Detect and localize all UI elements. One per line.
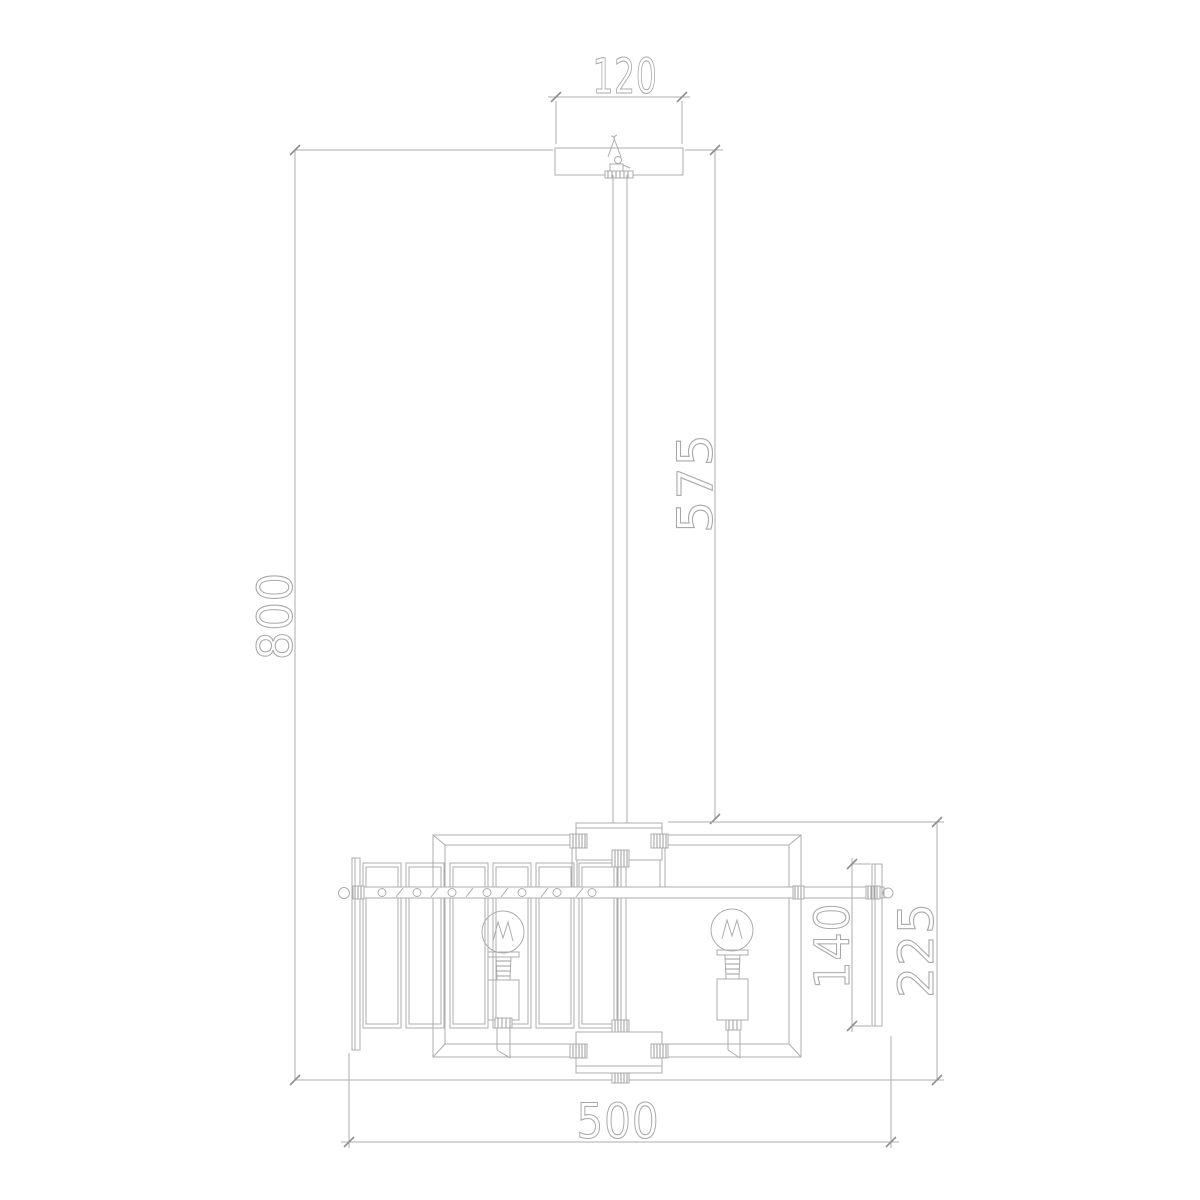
bulb-filament-icon — [722, 920, 742, 939]
dimension-end-plate-height: 140 — [805, 858, 871, 1032]
dimension-canopy-width: 120 — [548, 49, 690, 144]
finial — [612, 1073, 629, 1083]
dim-label-rod-length: 575 — [668, 433, 724, 533]
threaded-nipple-right — [651, 1044, 668, 1058]
hub-plate — [576, 1032, 662, 1073]
dim-label-overall-height: 800 — [248, 572, 304, 660]
bar-thread-frame-crossing — [793, 886, 804, 899]
bar-eye-left — [339, 888, 350, 899]
threaded-nipple-left — [570, 834, 587, 848]
bar-thread-right — [866, 886, 880, 899]
ceiling-canopy — [555, 135, 683, 178]
frame-bevel — [433, 835, 445, 845]
candle-body — [717, 979, 748, 1020]
frame-bevel — [789, 1044, 801, 1057]
hanging-hook-icon — [605, 135, 633, 178]
frame-bevel — [789, 835, 801, 845]
suspension-rod — [613, 175, 627, 823]
dim-label-canopy-width: 120 — [593, 49, 658, 105]
screw-base — [496, 957, 511, 980]
lower-collar — [726, 1020, 741, 1030]
bulb-assembly-right — [711, 909, 753, 1058]
dimension-rod-length: 575 — [668, 145, 724, 824]
technical-drawing-page: 120 575 800 — [0, 0, 1200, 1200]
threaded-nipple-right — [651, 834, 668, 848]
support-bar — [339, 886, 894, 899]
threaded-collar — [612, 850, 629, 867]
threaded-stub-top — [612, 1020, 629, 1032]
stem — [497, 1028, 510, 1058]
dim-label-end-plate-height: 140 — [805, 903, 861, 990]
dim-label-body-height: 225 — [889, 902, 945, 998]
chandelier-dimension-drawing: 120 575 800 — [0, 0, 1200, 1200]
lower-collar — [495, 1018, 512, 1028]
screw-base — [725, 955, 740, 979]
frame-bevel — [433, 1044, 445, 1057]
bar-thread-left — [353, 886, 364, 899]
top-hub — [570, 823, 668, 867]
dim-label-body-width: 500 — [577, 1094, 660, 1150]
bottom-hub — [570, 1020, 668, 1083]
threaded-nipple-left — [570, 1044, 587, 1058]
bulb-icon — [711, 909, 753, 951]
